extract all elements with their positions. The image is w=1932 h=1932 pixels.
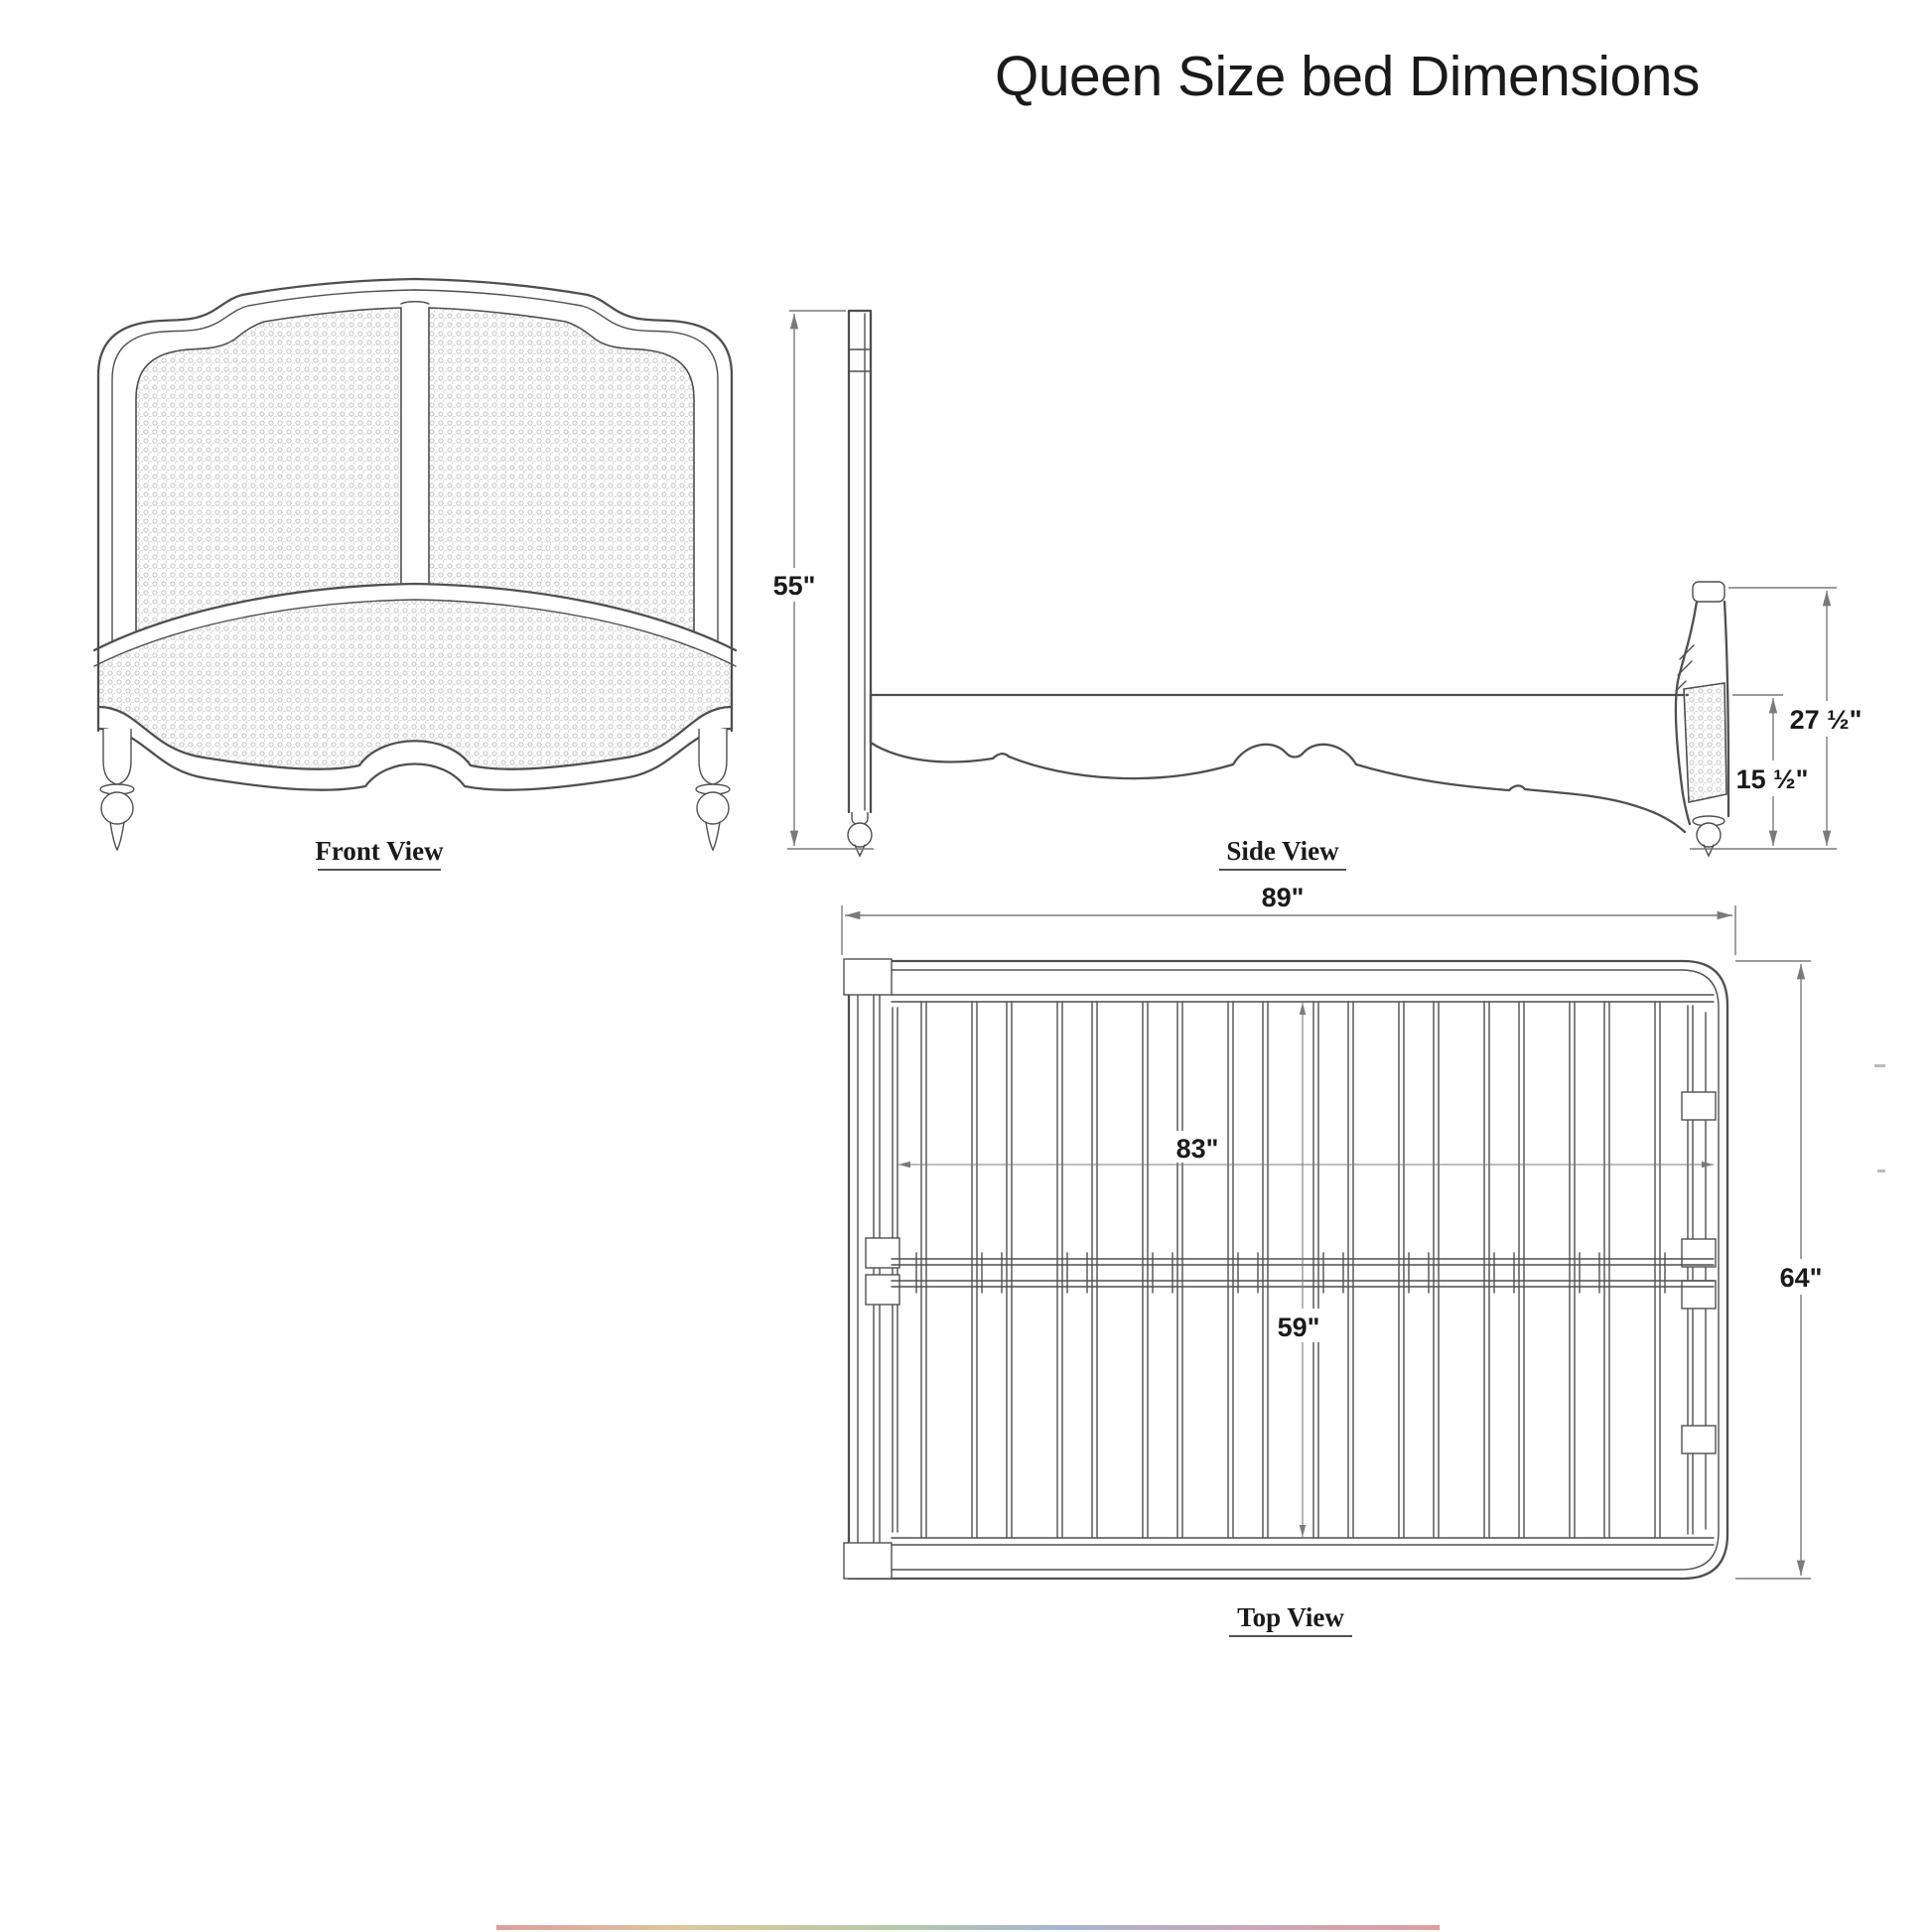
top-frame-outer (849, 961, 1727, 1579)
top-view-drawing: 89" 64" 83" 59" Top View (842, 883, 1833, 1636)
dimension-64: 64" (1735, 961, 1833, 1579)
front-foot-right (696, 729, 730, 850)
scan-specks (1874, 1064, 1885, 1173)
dimension-89: 89" (842, 883, 1735, 955)
dimension-55: 55" (768, 311, 874, 849)
interior-length-value: 83" (1176, 1134, 1219, 1164)
front-footboard (94, 584, 736, 790)
overall-length-value: 89" (1262, 883, 1305, 912)
side-footboard (1676, 582, 1728, 856)
front-foot-left (100, 729, 134, 850)
side-footboard-cane-panel (1684, 683, 1726, 802)
interior-width-value: 59" (1278, 1312, 1320, 1342)
front-view-drawing: Front View (94, 279, 736, 870)
top-view-label: Top View (1237, 1602, 1344, 1632)
side-headboard-post (848, 311, 872, 856)
scan-artifact-strip (496, 1925, 1440, 1930)
side-view-label: Side View (1226, 836, 1339, 866)
overall-width-value: 64" (1780, 1263, 1823, 1293)
front-view-label: Front View (315, 836, 444, 866)
bed-dimensions-diagram: Front View (0, 0, 1932, 1932)
footboard-height-value: 27 ½" (1790, 705, 1863, 735)
front-headboard-divider-cap (401, 302, 429, 304)
side-rail-apron (871, 695, 1685, 832)
side-view-drawing: 55" 27 ½" 15 ½" Side View (768, 311, 1865, 870)
headboard-height-value: 55" (773, 571, 816, 601)
rail-height-value: 15 ½" (1736, 764, 1809, 794)
